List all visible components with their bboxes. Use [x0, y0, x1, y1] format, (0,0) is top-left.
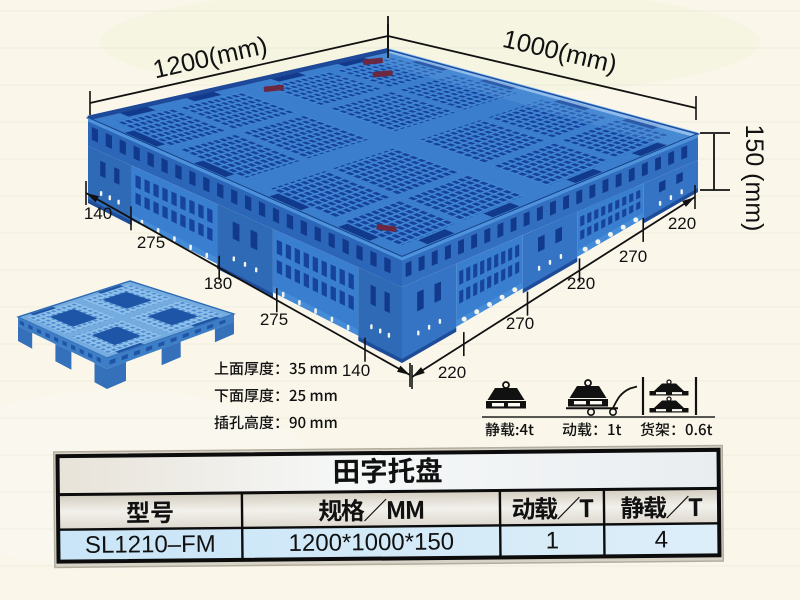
svg-text:1: 1	[546, 527, 560, 554]
svg-text:270: 270	[506, 314, 534, 333]
svg-text:220: 220	[668, 214, 696, 233]
svg-text:275: 275	[137, 233, 165, 252]
svg-text:180: 180	[204, 274, 232, 293]
svg-text:275: 275	[260, 310, 288, 329]
svg-text:270: 270	[619, 247, 647, 266]
svg-text:150 (mm): 150 (mm)	[740, 125, 768, 232]
svg-text:220: 220	[438, 363, 466, 382]
svg-text:1200*1000*150: 1200*1000*150	[288, 528, 454, 557]
svg-text:4: 4	[655, 526, 669, 553]
svg-text:140: 140	[342, 361, 370, 380]
svg-text:140: 140	[84, 204, 112, 223]
svg-text:220: 220	[567, 274, 595, 293]
svg-text:SL1210–FM: SL1210–FM	[85, 531, 216, 559]
